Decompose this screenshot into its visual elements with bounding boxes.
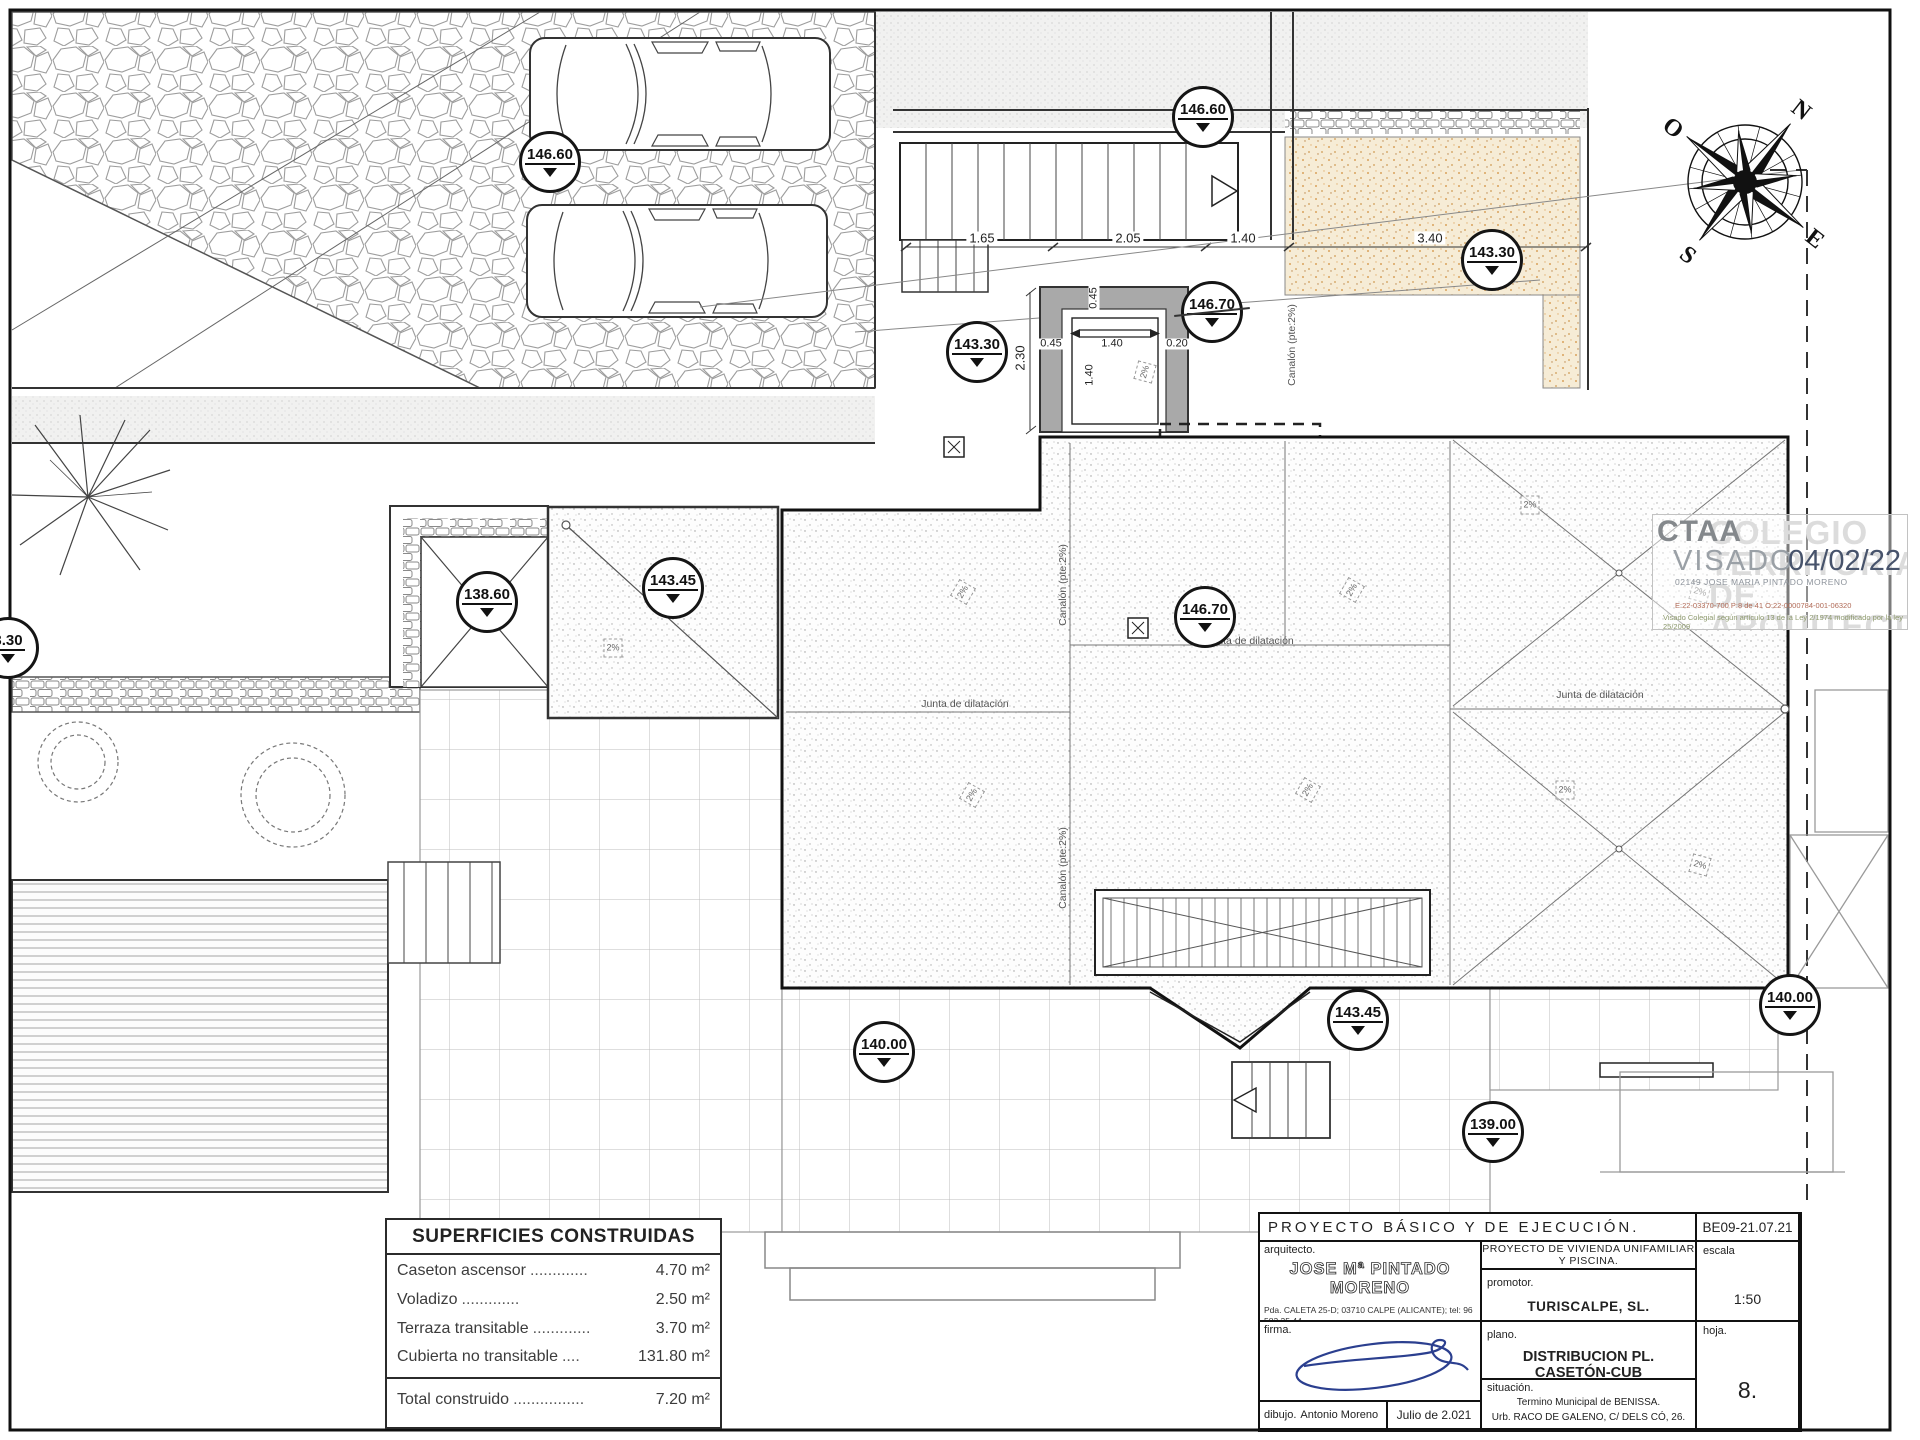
slope-label: 2% — [1520, 496, 1539, 515]
table-row: Voladizo.............2.50 m² — [387, 1284, 720, 1313]
situacion-label: situación. — [1487, 1382, 1533, 1394]
level-arrow-icon — [1205, 318, 1219, 327]
row-label: Terraza transitable — [397, 1317, 529, 1342]
row-label: Voladizo — [397, 1288, 458, 1313]
elevation-value: 138.60 — [462, 587, 512, 605]
title-block: PROYECTO BÁSICO Y DE EJECUCIÓN. BE09-21.… — [1258, 1212, 1802, 1432]
level-arrow-icon — [877, 1058, 891, 1067]
elevation-marker: 143.30 — [1461, 229, 1523, 291]
elevator-shaft — [1040, 287, 1188, 432]
compass-n-label: N — [1786, 95, 1816, 127]
elevation-value: 139.00 — [1468, 1117, 1518, 1135]
superficies-table: SUPERFICIES CONSTRUIDAS Caseton ascensor… — [385, 1218, 722, 1429]
elevation-value: 146.70 — [1187, 297, 1237, 315]
sheet-code: BE09-21.07.21 — [1697, 1214, 1800, 1242]
elevation-marker: 139.00 — [1462, 1101, 1524, 1163]
level-arrow-icon — [1351, 1026, 1365, 1035]
date-cell: Julio de 2.021 — [1388, 1402, 1482, 1430]
stamp-date: 04/02/22 — [1788, 545, 1901, 578]
elevation-value: 143.30 — [1467, 245, 1517, 263]
level-arrow-icon — [970, 358, 984, 367]
elevation-value: 140.00 — [859, 1037, 909, 1055]
hoja-cell: hoja. 8. — [1697, 1322, 1800, 1430]
elevation-marker: 140.00 — [853, 1021, 915, 1083]
canalon-label: Canalón (pte:2%) — [1057, 827, 1069, 909]
compass-star — [1641, 78, 1849, 286]
row-label: Cubierta no transitable — [397, 1345, 558, 1370]
elevation-marker: 138.60 — [456, 571, 518, 633]
level-arrow-icon — [480, 608, 494, 617]
table-row: Cubierta no transitable....131.80 m² — [387, 1341, 720, 1370]
elevation-value: 143.30 — [952, 337, 1002, 355]
escala-cell: escala 1:50 — [1697, 1242, 1800, 1322]
dim-label: 1.40 — [1227, 232, 1258, 245]
level-arrow-icon — [1, 654, 15, 663]
junta-label: Junta de dilatación — [921, 698, 1009, 710]
dim-label: 1.40 — [1085, 361, 1096, 388]
signature — [1264, 1336, 1478, 1394]
promotor-name: TURISCALPE, SL. — [1487, 1299, 1690, 1314]
architect-name: JOSE Mª PINTADO MORENO — [1264, 1260, 1476, 1298]
slope-label: 2% — [1555, 781, 1574, 800]
dibujo-cell: dibujo. Antonio Moreno — [1260, 1402, 1388, 1430]
plano-cell: plano. DISTRIBUCION PL. CASETÓN-CUB — [1482, 1322, 1697, 1380]
plano-name: DISTRIBUCION PL. CASETÓN-CUB — [1487, 1349, 1690, 1380]
bush-icon — [38, 722, 345, 847]
table-total-row: Total construido................7.20 m² — [387, 1377, 720, 1413]
car-bottom-icon — [527, 205, 827, 317]
promotor-label: promotor. — [1487, 1277, 1533, 1289]
level-arrow-icon — [1198, 623, 1212, 632]
superficies-title: SUPERFICIES CONSTRUIDAS — [387, 1220, 720, 1255]
stone-edge-band — [12, 677, 420, 712]
row-dots: ............. — [529, 1317, 656, 1342]
dim-label: 0.45 — [1037, 339, 1064, 350]
stamp-holder: 02149 JOSE MARIA PINTADO MORENO — [1675, 577, 1848, 587]
stamp-refs: E:22-03370-700 P:8 de 41 O:22-0000784-00… — [1675, 601, 1851, 610]
row-value: 4.70 m² — [656, 1259, 710, 1284]
dibujo-label: dibujo. — [1264, 1409, 1296, 1421]
situacion-cell: situación. Termino Municipal de BENISSA.… — [1482, 1380, 1697, 1430]
row-dots: ................ — [509, 1388, 656, 1413]
elevation-marker: 140.00 — [1759, 974, 1821, 1036]
level-arrow-icon — [1485, 266, 1499, 275]
mid-walk-band — [12, 396, 875, 443]
compass-o-label: O — [1657, 112, 1688, 144]
project-header: PROYECTO BÁSICO Y DE EJECUCIÓN. — [1260, 1214, 1697, 1242]
dim-label: 3.40 — [1414, 232, 1445, 245]
row-dots: ............. — [458, 1288, 656, 1313]
garden-bed — [1285, 110, 1580, 388]
row-value: 131.80 m² — [638, 1345, 710, 1370]
elevation-marker: 143.30 — [946, 321, 1008, 383]
row-label: Caseton ascensor — [397, 1259, 526, 1284]
architect-cell: arquitecto. JOSE Mª PINTADO MORENO Pda. … — [1260, 1242, 1482, 1322]
firma-label: firma. — [1264, 1324, 1476, 1336]
hoja-label: hoja. — [1703, 1325, 1792, 1337]
row-dots: .... — [558, 1345, 638, 1370]
compass-rose: N E S O — [1601, 39, 1886, 326]
row-label: Total construido — [397, 1388, 509, 1413]
slope-label: 2% — [603, 639, 622, 658]
signature-cell: firma. — [1260, 1322, 1482, 1402]
elevation-marker: 146.70 — [1174, 586, 1236, 648]
level-arrow-icon — [1196, 123, 1210, 132]
elevation-value: 143.45 — [648, 573, 698, 591]
skylight-pergola — [1095, 890, 1430, 975]
dim-label: 0.45 — [1089, 284, 1100, 311]
pool-steps — [388, 862, 500, 963]
elevation-marker: 146.60 — [519, 131, 581, 193]
elevation-marker: 143.45 — [642, 557, 704, 619]
elevation-value: 146.70 — [1180, 602, 1230, 620]
elevation-value: 143.45 — [1333, 1005, 1383, 1023]
escala-label: escala — [1703, 1245, 1792, 1257]
table-row: Terraza transitable.............3.70 m² — [387, 1313, 720, 1342]
row-value: 7.20 m² — [656, 1388, 710, 1413]
project-title-cell: PROYECTO DE VIVIENDA UNIFAMILIAR Y PISCI… — [1482, 1242, 1697, 1270]
stair-bottom — [1232, 1062, 1330, 1138]
situacion-line2: Urb. RACO DE GALENO, C/ DELS CÓ, 26. — [1487, 1410, 1690, 1425]
stamp-ctaa-logo: CTAA — [1657, 515, 1742, 549]
car-top-icon — [530, 38, 830, 150]
stamp-visado-word: VISADO — [1673, 545, 1795, 578]
elevation-value: 3.30 — [0, 633, 25, 651]
compass-e-label: E — [1800, 224, 1829, 254]
escala-value: 1:50 — [1703, 1291, 1792, 1307]
junta-label: Junta de dilatación — [1556, 689, 1644, 701]
elevation-marker: 143.45 — [1327, 989, 1389, 1051]
table-row: Caseton ascensor.............4.70 m² — [387, 1255, 720, 1284]
main-roof — [782, 437, 1789, 1048]
dim-label: 1.65 — [966, 232, 997, 245]
elevation-marker-crossed: 146.70 — [1181, 281, 1243, 343]
compass-s-label: S — [1674, 241, 1701, 270]
architect-address: Pda. CALETA 25-D; 03710 CALPE (ALICANTE)… — [1264, 1305, 1476, 1322]
elevation-value: 146.60 — [525, 147, 575, 165]
situacion-line1: Termino Municipal de BENISSA. — [1487, 1395, 1690, 1410]
architect-label: arquitecto. — [1264, 1244, 1476, 1256]
dim-label: 0.20 — [1163, 339, 1190, 350]
row-dots: ............. — [526, 1259, 656, 1284]
visado-stamp: COLEGIO TERRITORIAL DE ARQUITECTOS CTAA … — [1652, 514, 1908, 630]
level-arrow-icon — [1783, 1011, 1797, 1020]
stair-top — [900, 143, 1238, 292]
dim-label: 1.40 — [1098, 339, 1125, 350]
dim-label: 2.05 — [1112, 232, 1143, 245]
elevation-value: 146.60 — [1178, 102, 1228, 120]
dim-label: 2.30 — [1014, 342, 1027, 373]
plano-label: plano. — [1487, 1329, 1517, 1341]
canalon-label: Canalón (pte:2%) — [1057, 544, 1069, 626]
dibujo-name: Antonio Moreno — [1300, 1409, 1378, 1421]
level-arrow-icon — [1486, 1138, 1500, 1147]
row-value: 2.50 m² — [656, 1288, 710, 1313]
level-arrow-icon — [666, 594, 680, 603]
elevation-marker: 146.60 — [1172, 86, 1234, 148]
hoja-value: 8. — [1703, 1377, 1792, 1404]
elevation-value: 140.00 — [1765, 990, 1815, 1008]
row-value: 3.70 m² — [656, 1317, 710, 1342]
plan-sheet: N E S O 146.60 146.60 143.30 146.70 143.… — [0, 0, 1920, 1440]
stamp-legal: Visado Colegial según artículo 13 de la … — [1663, 613, 1907, 630]
promotor-cell: promotor. TURISCALPE, SL. — [1482, 1270, 1697, 1322]
level-arrow-icon — [543, 168, 557, 177]
canalon-label: Canalón (pte:2%) — [1286, 304, 1298, 386]
